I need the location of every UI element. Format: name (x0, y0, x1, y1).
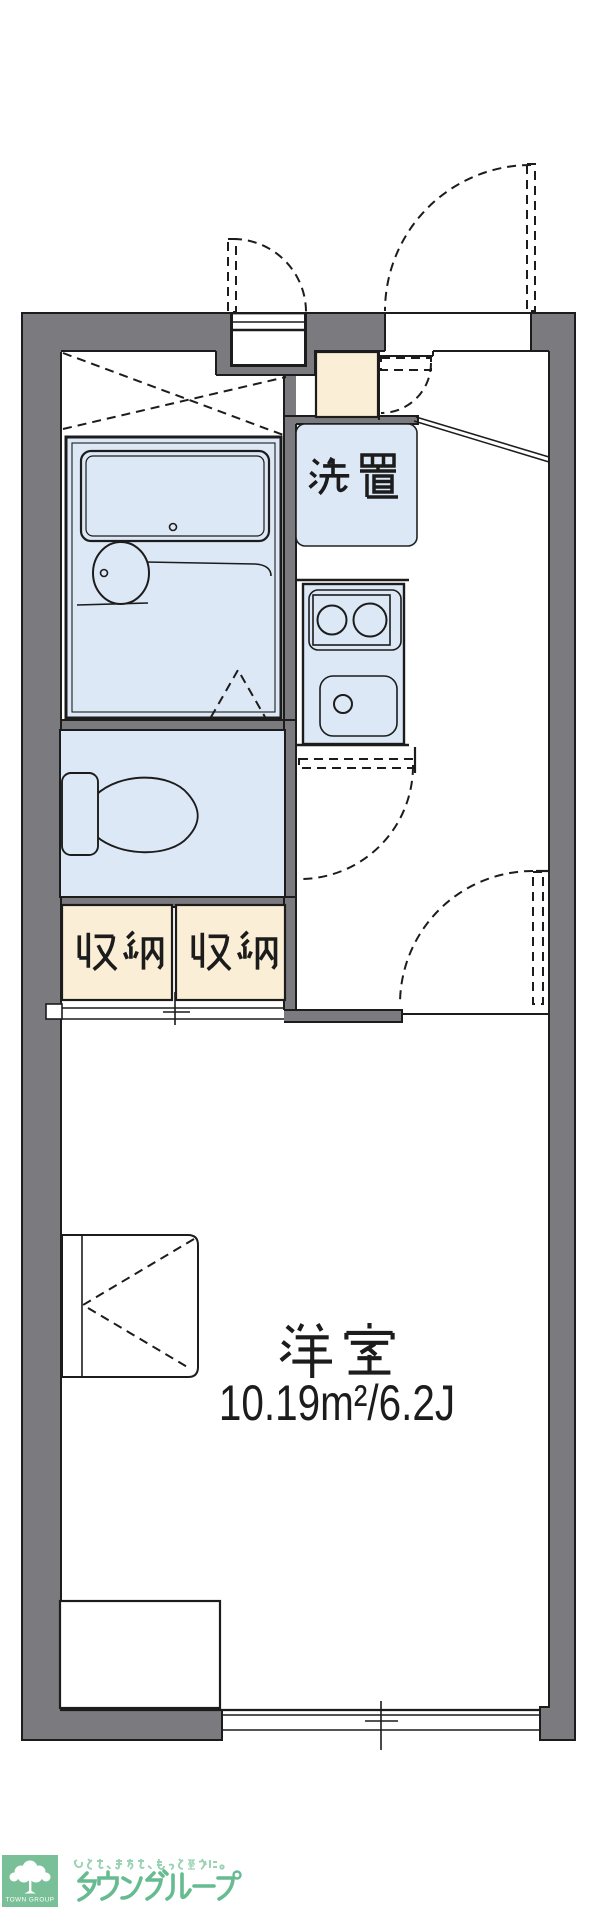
svg-text:TOWN GROUP: TOWN GROUP (6, 1897, 55, 1904)
svg-text:10.19m²/6.2J: 10.19m²/6.2J (219, 1375, 455, 1431)
